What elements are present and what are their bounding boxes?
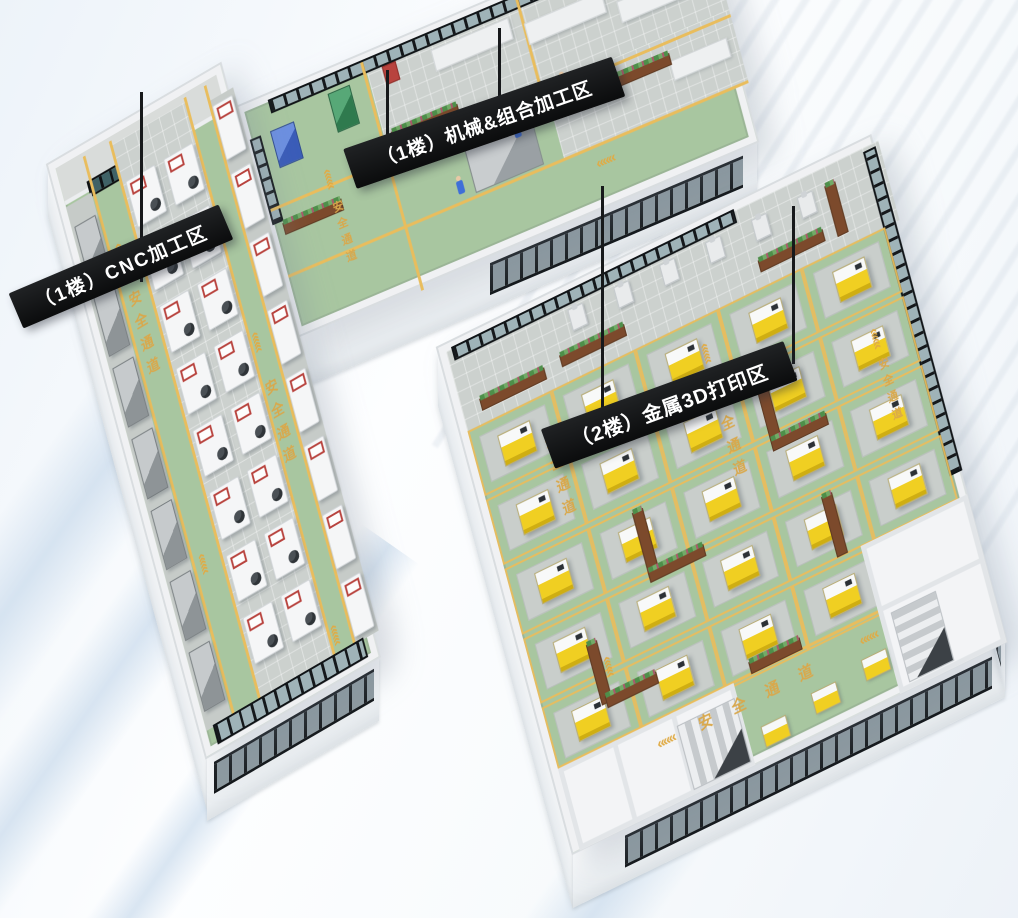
cnc-robot-arm — [220, 298, 233, 316]
cnc-screen — [289, 373, 306, 393]
metal-3d-printer — [655, 655, 696, 702]
cnc-robot-arm — [266, 632, 279, 650]
lane-chevrons: ««« — [194, 549, 213, 576]
cnc-screen — [234, 402, 251, 422]
cnc-screen — [213, 487, 230, 507]
cnc-robot-arm — [233, 507, 246, 525]
cnc-robot-arm — [304, 610, 317, 628]
cnc-screen — [253, 236, 270, 256]
cnc-screen — [247, 611, 264, 631]
interior-wall — [612, 740, 638, 824]
cnc-screen — [230, 549, 247, 569]
metal-3d-printer — [516, 488, 557, 535]
worker-figure — [456, 180, 466, 195]
lane-chevrons: ««« — [858, 625, 880, 650]
banner-pole — [792, 206, 795, 364]
yellow-machine — [760, 715, 791, 749]
cnc-screen — [197, 424, 214, 444]
cnc-screen — [271, 304, 288, 324]
cnc-robot-arm — [149, 196, 162, 214]
cnc-screen — [163, 300, 180, 320]
printer-pad — [618, 571, 696, 649]
cnc-screen — [130, 175, 147, 195]
banner-pole — [601, 186, 604, 436]
lane-chevrons: ««« — [326, 620, 345, 647]
yellow-machine — [861, 648, 892, 682]
metal-3d-printer — [534, 557, 575, 604]
factory-isometric-scene: 安全通道 安全通道 ««« ««« ««« ««« 安全通道 ««« ««« — [0, 0, 1018, 918]
lane-chevrons: ««« — [594, 149, 616, 173]
metal-3d-printer — [748, 297, 789, 344]
cnc-screen — [344, 577, 361, 597]
cnc-screen — [201, 278, 218, 298]
cnc-robot-arm — [237, 361, 250, 379]
cnc-screen — [180, 362, 197, 382]
metal-3d-printer — [497, 419, 538, 466]
cnc-screen — [251, 465, 268, 485]
cnc-robot-arm — [287, 548, 300, 566]
metal-3d-printer — [831, 256, 872, 303]
lane-chevrons: ««« — [247, 328, 266, 355]
yellow-machine — [811, 681, 842, 715]
metal-3d-printer — [636, 586, 677, 633]
metal-3d-printer — [599, 448, 640, 495]
lane-chevrons: ««« — [319, 166, 340, 191]
cnc-robot-arm — [216, 445, 229, 463]
cnc-robot-arm — [254, 423, 267, 441]
cnc-robot-arm — [187, 174, 200, 192]
cnc-screen — [235, 168, 252, 188]
cnc-robot-arm — [199, 383, 212, 401]
cnc-screen — [168, 153, 185, 173]
cnc-screen — [326, 509, 343, 529]
cnc-screen — [268, 527, 285, 547]
cnc-robot-arm — [249, 570, 262, 588]
safety-lane-text: 安全通道 — [328, 198, 369, 301]
cnc-screen — [284, 589, 301, 609]
green-robot-machine — [328, 85, 360, 133]
cnc-screen — [218, 340, 235, 360]
blue-robot-machine — [270, 121, 304, 168]
cnc-robot-arm — [270, 485, 283, 503]
metal-3d-printer — [822, 573, 863, 620]
cnc-screen — [308, 441, 325, 461]
cnc-screen — [216, 100, 233, 120]
cnc-robot-arm — [183, 320, 196, 338]
